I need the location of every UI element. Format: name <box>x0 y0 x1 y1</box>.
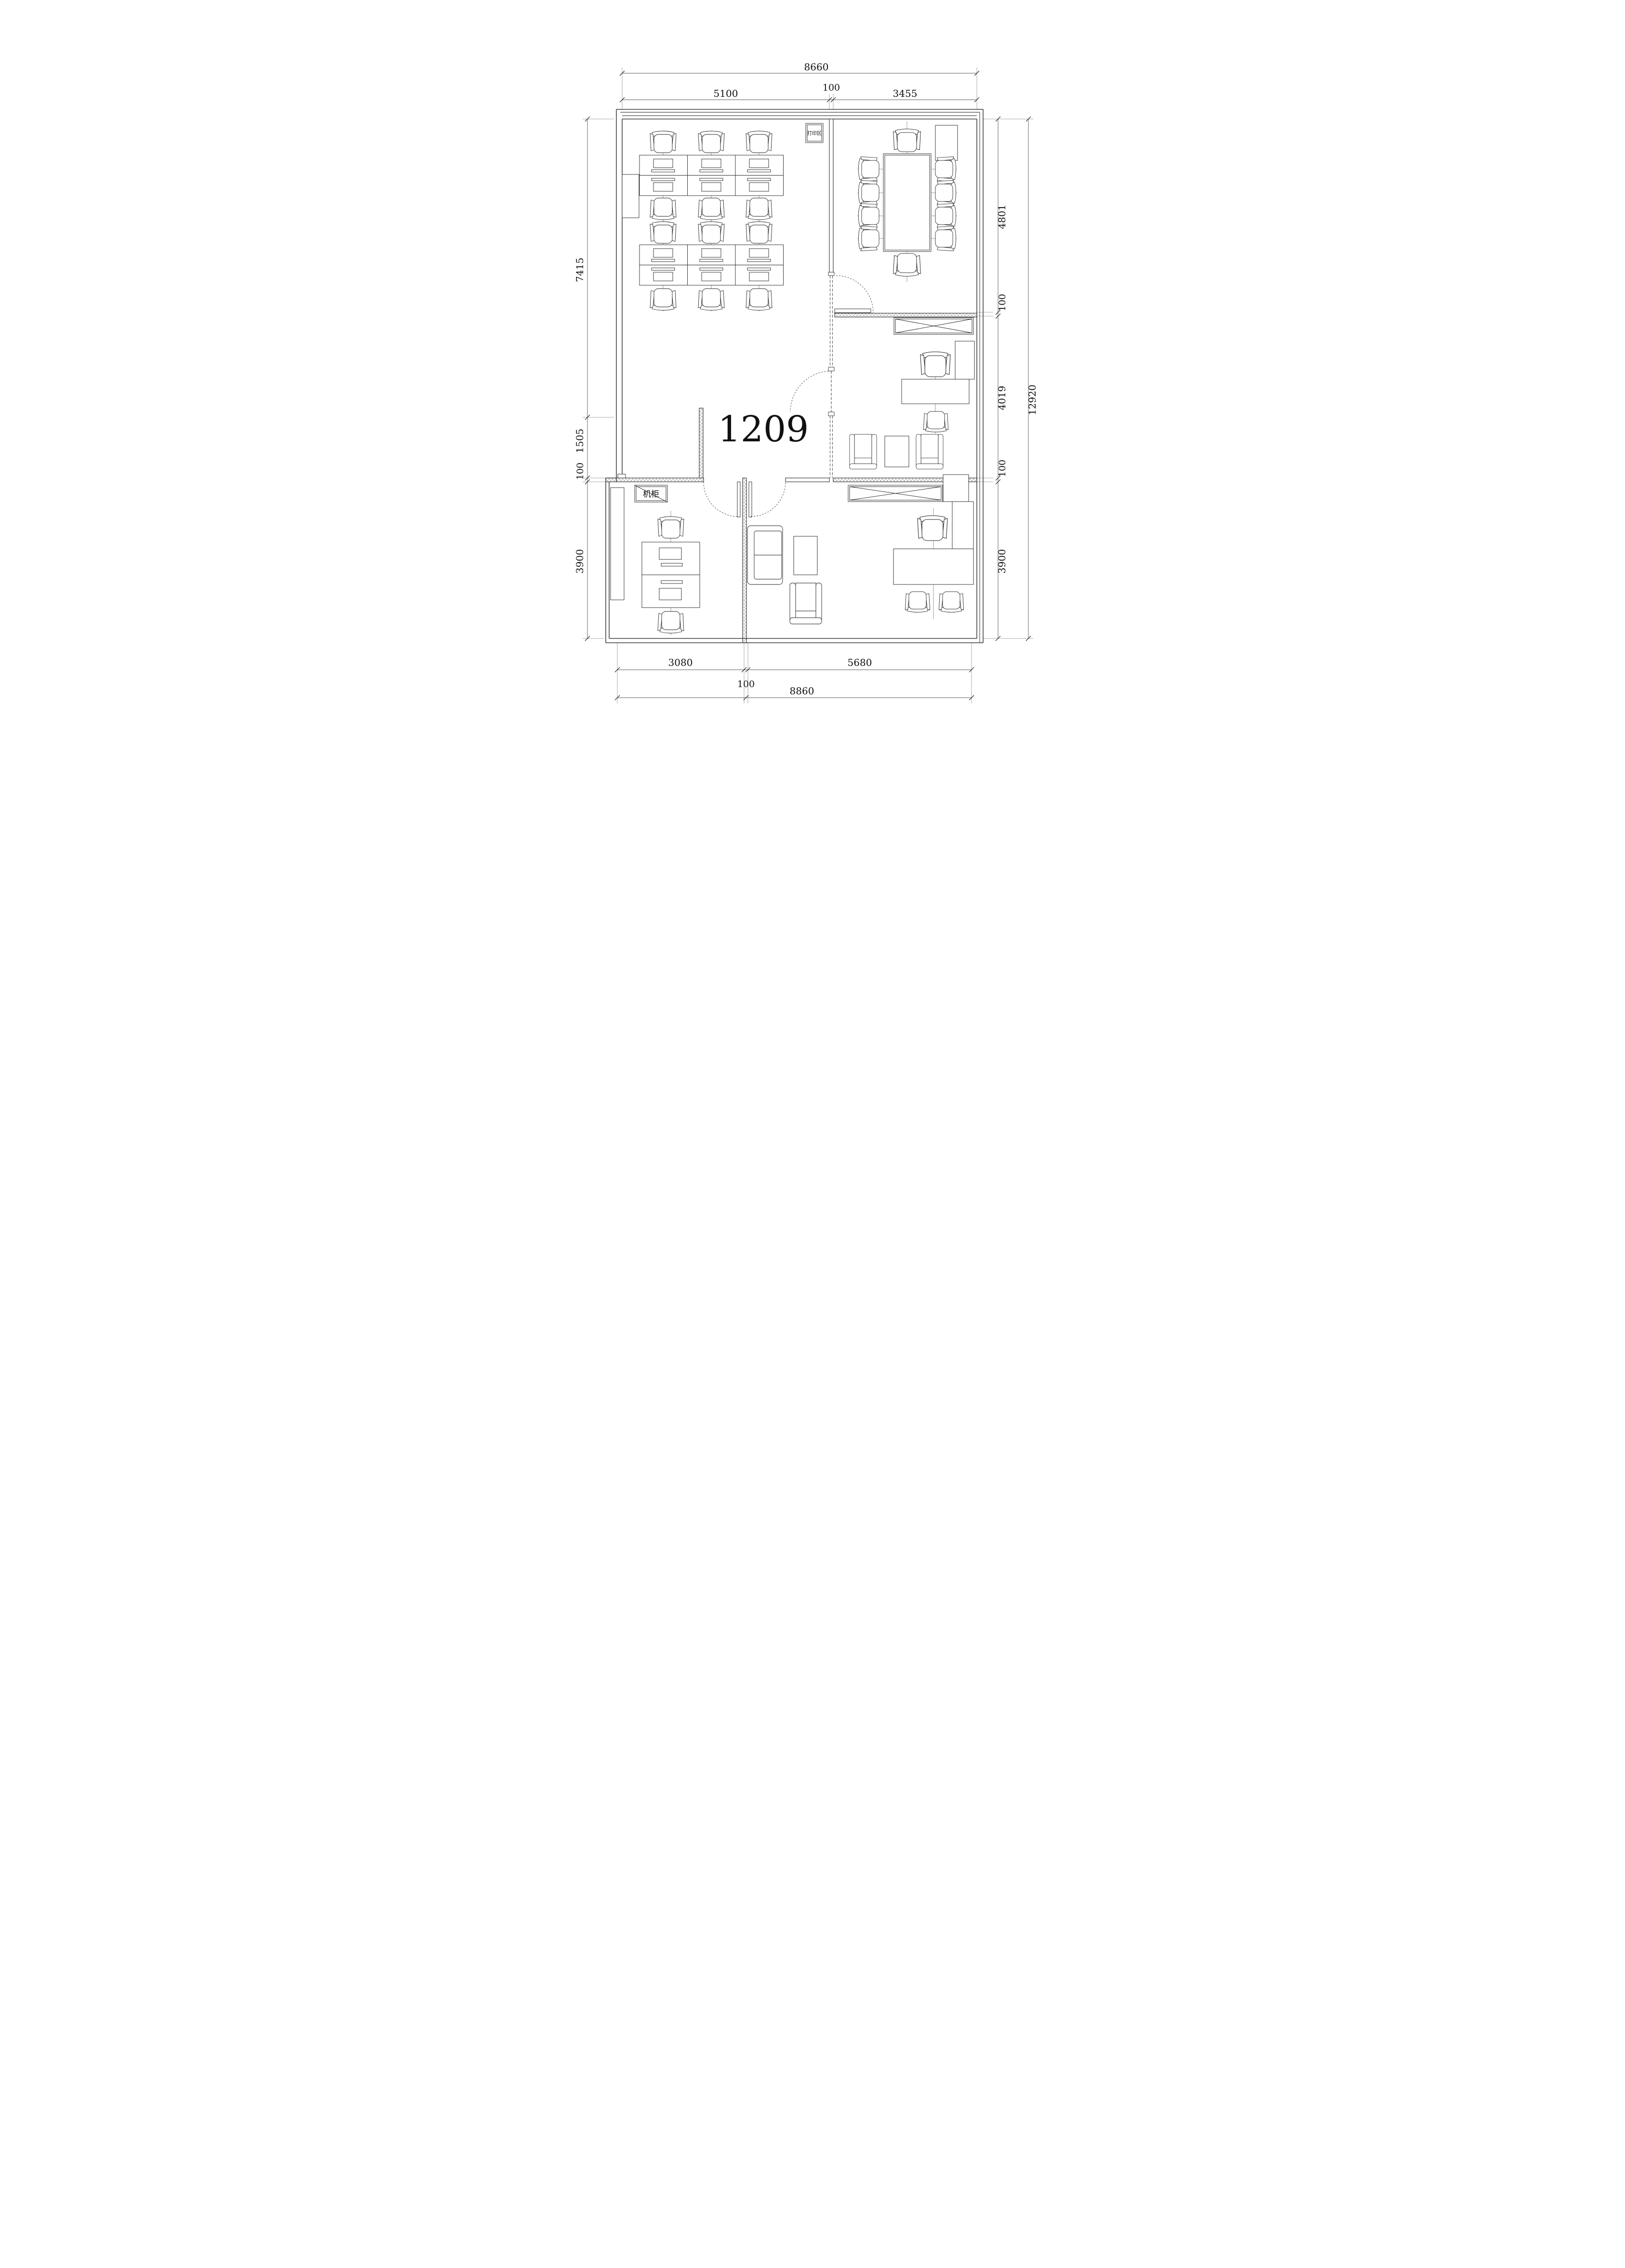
dim-right-overall: 12920 <box>1026 385 1038 415</box>
conference-table <box>883 154 931 252</box>
executive-office <box>747 485 973 624</box>
floor-plan-page: 8660 5100 100 3455 7415 1505 100 3900 48… <box>542 0 1083 756</box>
print-area-box: 打印区 <box>806 123 823 143</box>
guest-chair <box>939 592 963 612</box>
wall-middle-office-south <box>833 478 943 482</box>
workstation-block-2 <box>639 245 784 285</box>
dimensions-left: 7415 1505 100 3900 <box>574 117 614 641</box>
side-cabinet <box>622 174 639 218</box>
wardrobe-cabinet <box>894 318 973 334</box>
server-room: 机柜 <box>611 485 700 635</box>
server-room-door-swing <box>704 482 738 517</box>
conference-door-swing <box>836 276 873 313</box>
corner-column <box>618 474 626 478</box>
executive-room-door-leaf <box>749 482 752 517</box>
dimensions-top: 8660 5100 100 3455 <box>620 61 979 109</box>
wall-hall-stub <box>699 408 703 478</box>
wall-conference-south <box>835 313 977 317</box>
wardrobe-cabinet <box>848 485 943 502</box>
wall-hall-south-west <box>606 478 704 482</box>
conference-room <box>857 121 958 282</box>
office-desk <box>902 379 969 404</box>
dim-top-overall: 8660 <box>804 61 829 73</box>
executive-chair <box>918 516 947 541</box>
dim-right-seg2: 100 <box>997 294 1008 311</box>
dim-left-seg4: 3900 <box>574 549 586 574</box>
double-desk <box>642 542 700 608</box>
dim-right-seg3: 4019 <box>996 386 1008 411</box>
office-chair <box>658 517 684 538</box>
lounge-armchair <box>790 583 822 624</box>
partition-office-conference <box>829 119 833 272</box>
dim-right-seg4: 100 <box>997 460 1008 477</box>
workstation-block-1 <box>639 155 784 196</box>
dim-top-seg2: 100 <box>823 82 840 93</box>
sofa <box>747 526 783 584</box>
office-chair <box>658 611 684 633</box>
desk-return <box>611 488 624 600</box>
meeting-corner <box>850 434 943 469</box>
server-cabinet-box: 机柜 <box>635 485 667 502</box>
middle-office <box>850 318 974 469</box>
dimensions-right: 4801 100 4019 100 3900 12920 <box>977 117 1038 641</box>
conference-door-leaf <box>835 309 871 313</box>
coffee-table <box>794 536 817 575</box>
dim-top-seg3: 3455 <box>893 88 918 99</box>
side-table <box>885 436 909 467</box>
dim-top-seg1: 5100 <box>714 88 738 99</box>
dim-bottom-seg2: 100 <box>737 679 755 690</box>
print-area-label: 打印区 <box>807 130 822 136</box>
dim-bottom-overall: 8860 <box>790 685 814 697</box>
executive-desk <box>893 549 973 584</box>
desk-return <box>955 341 974 379</box>
dim-right-seg5: 3900 <box>996 549 1008 574</box>
hall-area: 1209 <box>718 409 809 450</box>
dim-bottom-seg3: 5680 <box>848 657 872 668</box>
dim-right-seg1: 4801 <box>996 205 1008 229</box>
dim-left-seg1: 7415 <box>574 258 586 282</box>
conference-sideboard <box>935 125 958 160</box>
executive-room-door-swing <box>751 482 786 517</box>
executive-chair <box>920 352 950 377</box>
structural-column <box>943 475 969 502</box>
partition-lower-central <box>743 478 746 643</box>
room-number-label: 1209 <box>718 409 809 450</box>
desk-return <box>952 502 973 549</box>
dim-bottom-seg1: 3080 <box>668 657 693 668</box>
guest-chair <box>923 411 948 432</box>
dimensions-bottom: 3080 5680 100 8860 <box>615 643 974 703</box>
server-cabinet-label: 机柜 <box>643 490 659 499</box>
open-office-area: 打印区 <box>622 123 823 311</box>
wall-sliver <box>969 478 977 482</box>
wall-hall-south-east <box>786 478 829 482</box>
dim-left-seg2: 1505 <box>574 429 586 453</box>
guest-chair <box>905 592 930 612</box>
server-room-door-leaf <box>737 482 740 517</box>
middle-office-door-swing <box>790 371 831 412</box>
partition-end-cap <box>828 272 834 276</box>
dim-left-seg3: 100 <box>575 463 586 480</box>
floor-plan-canvas: 8660 5100 100 3455 7415 1505 100 3900 48… <box>542 0 1083 756</box>
lounge-area <box>747 526 822 624</box>
